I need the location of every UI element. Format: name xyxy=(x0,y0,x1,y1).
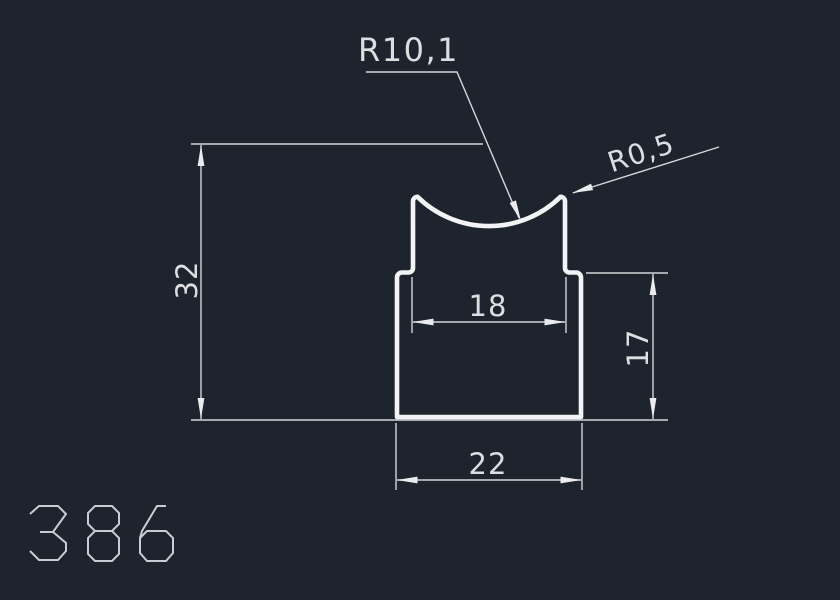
label-base-width: 22 xyxy=(469,447,508,481)
label-groove-radius: R10,1 xyxy=(358,31,459,69)
arrow-total-height-bottom xyxy=(198,398,205,419)
arrow-base-height-top xyxy=(650,274,657,295)
leader-line-groove-radius xyxy=(366,72,519,218)
part-number-text xyxy=(30,506,173,561)
label-top-width: 18 xyxy=(469,289,508,323)
arrow-top-width-right xyxy=(545,319,566,326)
dimension-lines xyxy=(191,72,719,490)
arrow-base-width-right xyxy=(561,477,582,484)
part-number-digit-3 xyxy=(30,506,66,560)
dimension-arrows xyxy=(198,145,657,483)
label-base-height: 17 xyxy=(621,329,655,368)
arrow-corner-radius xyxy=(571,184,593,197)
arrow-total-height-top xyxy=(198,145,205,166)
cad-drawing-canvas: R10,1 R0,5 18 22 32 17 xyxy=(0,0,840,600)
arrow-top-width-left xyxy=(413,319,434,326)
part-number-digit-8 xyxy=(88,506,119,561)
part-number-digit-6 xyxy=(140,506,173,561)
arrow-base-height-bottom xyxy=(650,398,657,419)
label-total-height: 32 xyxy=(170,261,204,300)
arrow-base-width-left xyxy=(397,477,418,484)
